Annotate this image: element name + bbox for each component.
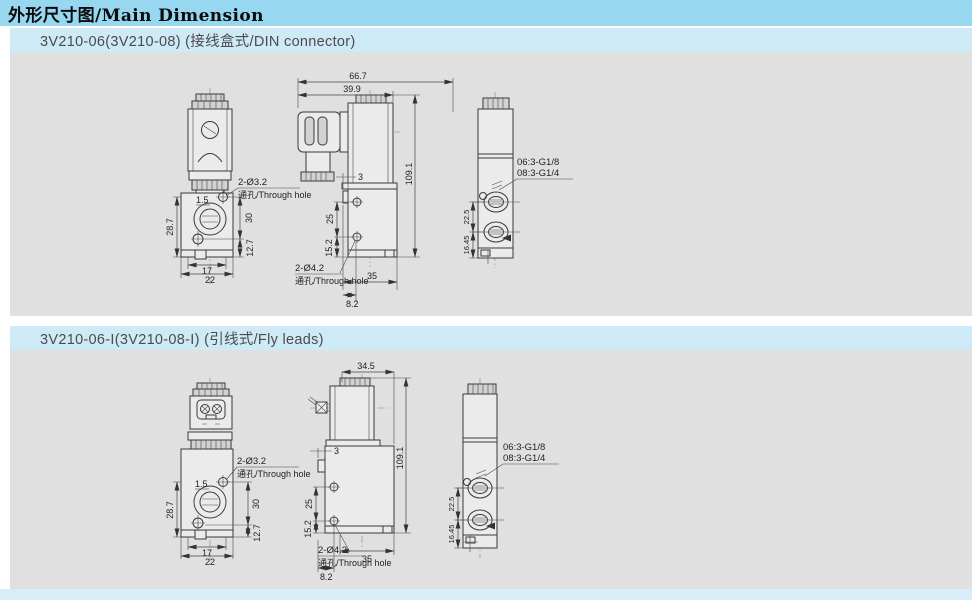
page-title-bar: 外形尺寸图/Main Dimension: [0, 0, 972, 26]
port-label-1: 06:3-G1/8: [517, 157, 559, 168]
dim-label: 1.5: [196, 195, 209, 205]
port-label-2: 08:3-G1/4: [503, 453, 545, 464]
end-view-drawing: 06:3-G1/8 08:3-G1/4 22.5 16.45: [462, 92, 573, 268]
din-connector: [298, 112, 348, 181]
dim-label: 39.9: [343, 84, 361, 94]
bottom-strip: [0, 589, 972, 600]
dim-label: 109.1: [404, 163, 414, 186]
dim-label: 25: [325, 214, 335, 224]
dim-label: 35: [367, 271, 377, 281]
dim-label: 22.5: [447, 497, 456, 512]
dim-label: 15.2: [324, 239, 334, 257]
page-title: 外形尺寸图/Main Dimension: [8, 1, 264, 26]
dim-label: 8.2: [320, 572, 333, 582]
dim-label: 16.45: [462, 236, 471, 255]
section-header-din: 3V210-06(3V210-08) (接线盒式/DIN connector): [10, 28, 972, 52]
hole-size-label: 2-Ø3.2: [237, 456, 266, 467]
din-drawing: 1.5 28.7 30 12.7 17 22 2-Ø3.2 通孔/Through…: [10, 52, 972, 316]
port-label-2: 08:3-G1/4: [517, 168, 559, 179]
hole-size-label: 2-Ø3.2: [238, 177, 267, 188]
port-label-1: 06:3-G1/8: [503, 442, 545, 453]
dim-label: 28.7: [165, 218, 175, 236]
hole-note-label: 通孔/Through hole: [237, 469, 311, 479]
dim-label: 3: [358, 172, 363, 182]
dim-label: 35: [362, 554, 372, 564]
dim-label: 22: [205, 557, 215, 567]
dim-label: 30: [244, 213, 254, 223]
dim-label: 22.5: [462, 210, 471, 225]
front-view-drawing: 1.5 28.7 30 12.7 17 22 2-Ø3.2 通孔/Through…: [165, 88, 312, 285]
dim-label: 12.7: [245, 239, 255, 257]
dim-label: 109.1: [395, 447, 405, 470]
front-view-drawing: 1.5 28.7 30 12.7 17 22 2-Ø3.2 通孔/Through…: [165, 378, 311, 567]
section-header-flyleads: 3V210-06-I(3V210-08-I) (引线式/Fly leads): [10, 326, 972, 350]
dim-label: 30: [251, 499, 261, 509]
through-hole-callout: 2-Ø3.2 通孔/Through hole: [226, 456, 311, 480]
hole-note-label: 通孔/Through hole: [318, 558, 392, 568]
dim-label: 1.5: [195, 479, 208, 489]
end-view-drawing: 06:3-G1/8 08:3-G1/4 22.5 16.45: [447, 378, 559, 558]
dim-label: 28.7: [165, 501, 175, 519]
hole-size-label: 2-Ø4.2: [318, 545, 347, 556]
dim-label: 22: [205, 275, 215, 285]
hole-note-label: 通孔/Through hole: [295, 276, 369, 286]
drawing-panel-din: 1.5 28.7 30 12.7 17 22 2-Ø3.2 通孔/Through…: [10, 52, 972, 316]
flyleads-drawing: 1.5 28.7 30 12.7 17 22 2-Ø3.2 通孔/Through…: [10, 350, 972, 589]
dim-label: 15.2: [303, 520, 313, 538]
dim-label: 3: [334, 446, 339, 456]
side-view-drawing: 34.5 109.1 3 25 15.2 2-Ø4.2 通孔/Through h…: [303, 361, 411, 582]
through-hole-callout: 2-Ø3.2 通孔/Through hole: [226, 177, 312, 200]
dim-label: 66.7: [349, 71, 367, 81]
fly-lead-gland: [308, 397, 330, 413]
hole-size-label: 2-Ø4.2: [295, 263, 324, 274]
dim-label: 8.2: [346, 299, 359, 309]
dim-label: 34.5: [357, 361, 375, 371]
dim-label: 25: [304, 499, 314, 509]
drawing-panel-flyleads: 1.5 28.7 30 12.7 17 22 2-Ø3.2 通孔/Through…: [10, 350, 972, 589]
side-view-drawing: 66.7 39.9 109.1 3 25 15.2 2-Ø4.2 通孔/Thro…: [295, 71, 453, 309]
hole-note-label: 通孔/Through hole: [238, 190, 312, 200]
section-title-flyleads: 3V210-06-I(3V210-08-I) (引线式/Fly leads): [40, 328, 324, 349]
dim-label: 16.45: [447, 525, 456, 544]
section-title-din: 3V210-06(3V210-08) (接线盒式/DIN connector): [40, 30, 356, 51]
dim-label: 12.7: [252, 524, 262, 542]
